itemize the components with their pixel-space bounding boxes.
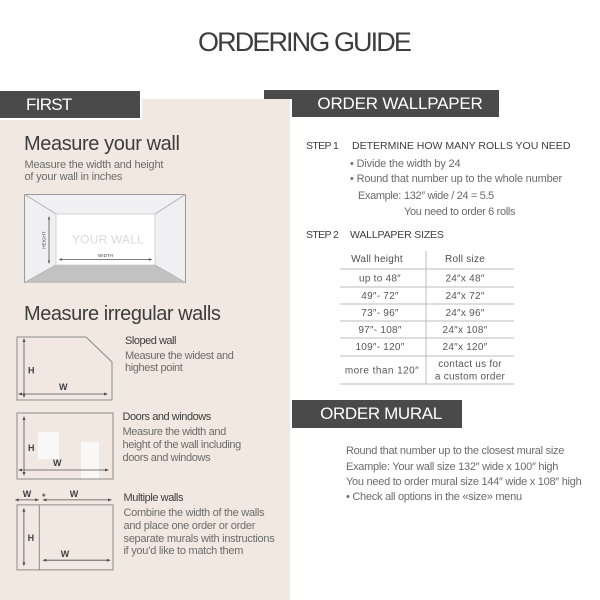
svg-text:Wall height: Wall height — [351, 254, 403, 265]
svg-text:WIDTH: WIDTH — [98, 253, 113, 258]
svg-text:W: W — [59, 382, 68, 392]
svg-text:H: H — [28, 443, 35, 453]
svg-text:HEIGHT: HEIGHT — [42, 231, 47, 249]
svg-text:up to 48″: up to 48″ — [359, 274, 401, 285]
svg-text:97″- 108″: 97″- 108″ — [358, 325, 401, 336]
svg-text:73″- 96″: 73″- 96″ — [361, 308, 399, 319]
svg-text:24″x 48″: 24″x 48″ — [445, 274, 484, 285]
svg-text:+: + — [42, 493, 46, 500]
svg-text:W: W — [70, 489, 79, 499]
svg-text:24″x 120″: 24″x 120″ — [443, 342, 488, 353]
svg-text:24″x 108″: 24″x 108″ — [443, 325, 488, 336]
svg-text:W: W — [23, 489, 32, 499]
svg-text:49″- 72″: 49″- 72″ — [361, 291, 399, 302]
svg-text:H: H — [28, 533, 34, 543]
svg-text:W: W — [53, 458, 62, 468]
svg-text:a custom order: a custom order — [435, 372, 506, 383]
svg-text:24″x 72″: 24″x 72″ — [445, 291, 484, 302]
svg-text:more than 120″: more than 120″ — [345, 365, 419, 376]
svg-text:Roll size: Roll size — [445, 254, 485, 265]
svg-text:W: W — [61, 549, 70, 559]
svg-text:24″x 96″: 24″x 96″ — [445, 308, 484, 319]
svg-text:109″- 120″: 109″- 120″ — [355, 342, 404, 353]
svg-text:H: H — [28, 366, 35, 376]
svg-text:YOUR WALL: YOUR WALL — [72, 233, 144, 247]
svg-text:contact us for: contact us for — [438, 359, 502, 370]
